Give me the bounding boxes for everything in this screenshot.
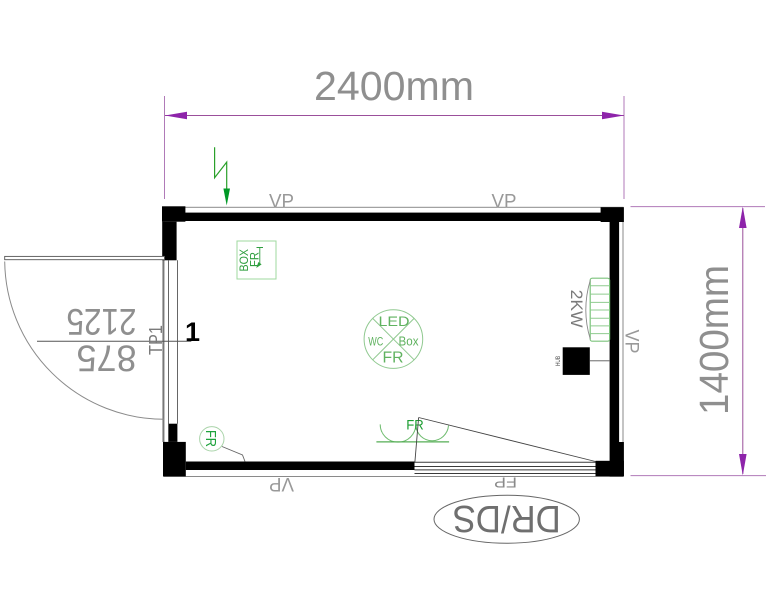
svg-text:875: 875 (77, 338, 137, 379)
svg-text:TP1: TP1 (146, 325, 166, 355)
svg-text:LED: LED (379, 313, 410, 329)
svg-text:FR: FR (383, 350, 404, 367)
svg-text:FP: FP (494, 474, 517, 491)
svg-text:1400mm: 1400mm (691, 265, 737, 415)
svg-text:2KW: 2KW (567, 290, 586, 328)
svg-text:VP: VP (492, 192, 517, 213)
svg-text:Box: Box (399, 334, 419, 349)
svg-text:DR/DS: DR/DS (453, 497, 561, 539)
svg-text:2125: 2125 (67, 301, 137, 342)
svg-text:WC: WC (368, 335, 383, 349)
svg-text:2400mm: 2400mm (314, 63, 474, 109)
svg-text:1: 1 (185, 317, 200, 347)
svg-text:VP: VP (269, 192, 294, 213)
svg-text:VP: VP (269, 473, 294, 494)
svg-text:FR: FR (406, 417, 424, 433)
svg-text:VP: VP (621, 330, 642, 354)
svg-text:HUB: HUB (556, 356, 562, 366)
svg-text:FR: FR (202, 430, 219, 447)
